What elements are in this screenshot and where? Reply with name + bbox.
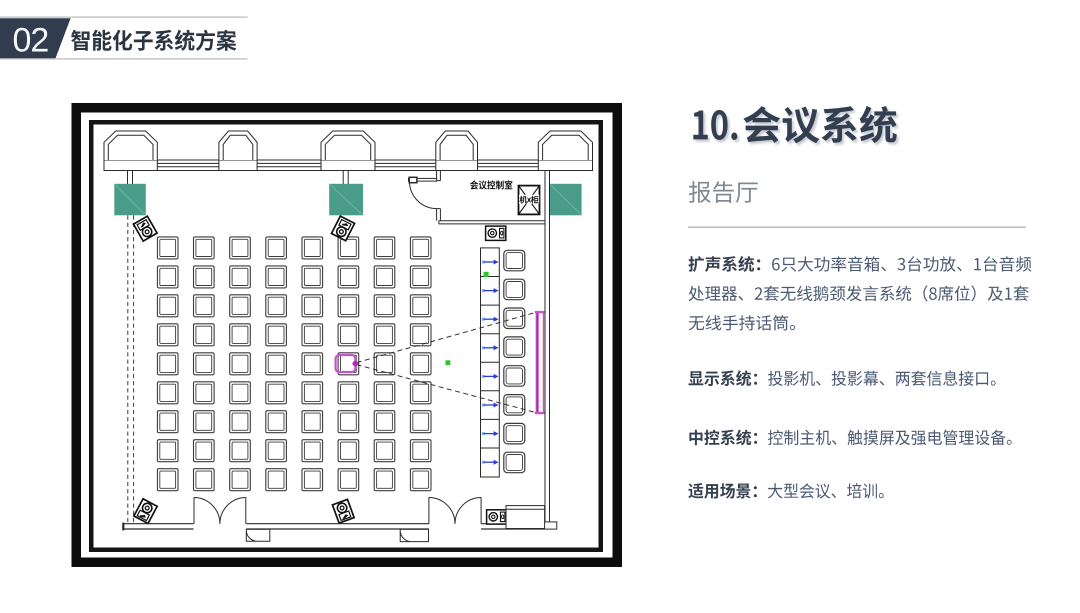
svg-text:02: 02 bbox=[13, 22, 49, 60]
